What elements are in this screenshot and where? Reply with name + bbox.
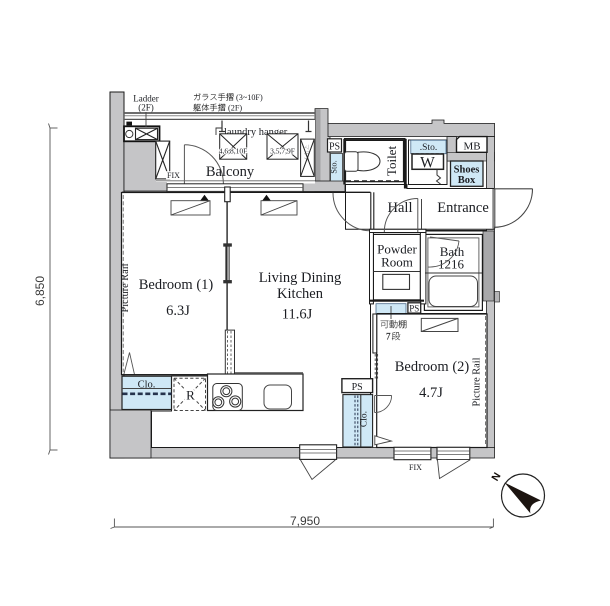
svg-text:3,5,7,9F: 3,5,7,9F [270, 147, 295, 156]
svg-text:6.3J: 6.3J [166, 303, 190, 319]
svg-text:FIX: FIX [409, 463, 422, 472]
svg-text:Picture Rail: Picture Rail [120, 263, 131, 312]
svg-text:Box: Box [458, 175, 476, 186]
svg-text:.Sto.: .Sto. [420, 143, 437, 153]
svg-text:(2F): (2F) [228, 104, 242, 113]
svg-text:(2F): (2F) [138, 103, 154, 113]
svg-text:PS: PS [352, 382, 363, 393]
svg-text:11.6J: 11.6J [282, 307, 313, 323]
svg-text:7: 7 [386, 332, 391, 342]
svg-text:Living Dining: Living Dining [259, 270, 342, 286]
svg-text:4,6,8,10F: 4,6,8,10F [219, 147, 248, 156]
svg-text:FIX: FIX [167, 171, 180, 180]
svg-text:Clo.: Clo. [360, 411, 370, 427]
svg-text:(3~10F): (3~10F) [236, 93, 263, 102]
svg-text:Clo.: Clo. [138, 379, 156, 390]
svg-text:4.7J: 4.7J [419, 385, 443, 401]
svg-text:PS: PS [329, 142, 340, 153]
svg-text:Bedroom (1): Bedroom (1) [139, 277, 214, 293]
svg-text:W: W [420, 155, 435, 172]
svg-text:7,950: 7,950 [290, 514, 320, 528]
svg-text:Sto.: Sto. [329, 160, 339, 173]
svg-text:6,850: 6,850 [33, 276, 47, 306]
svg-text:Entrance: Entrance [437, 200, 489, 216]
svg-text:Toilet: Toilet [384, 146, 399, 177]
svg-text:Bedroom (2): Bedroom (2) [395, 359, 470, 375]
svg-text:Room: Room [381, 255, 413, 270]
svg-text:PS: PS [409, 304, 419, 314]
svg-text:Kitchen: Kitchen [277, 286, 324, 302]
svg-text:R: R [186, 388, 195, 403]
svg-text:Shoes: Shoes [454, 165, 480, 176]
svg-text:Balcony: Balcony [206, 164, 255, 180]
svg-text:Picture Rail: Picture Rail [471, 357, 482, 406]
svg-text:MB: MB [463, 141, 480, 153]
svg-text:Hall: Hall [388, 200, 413, 216]
